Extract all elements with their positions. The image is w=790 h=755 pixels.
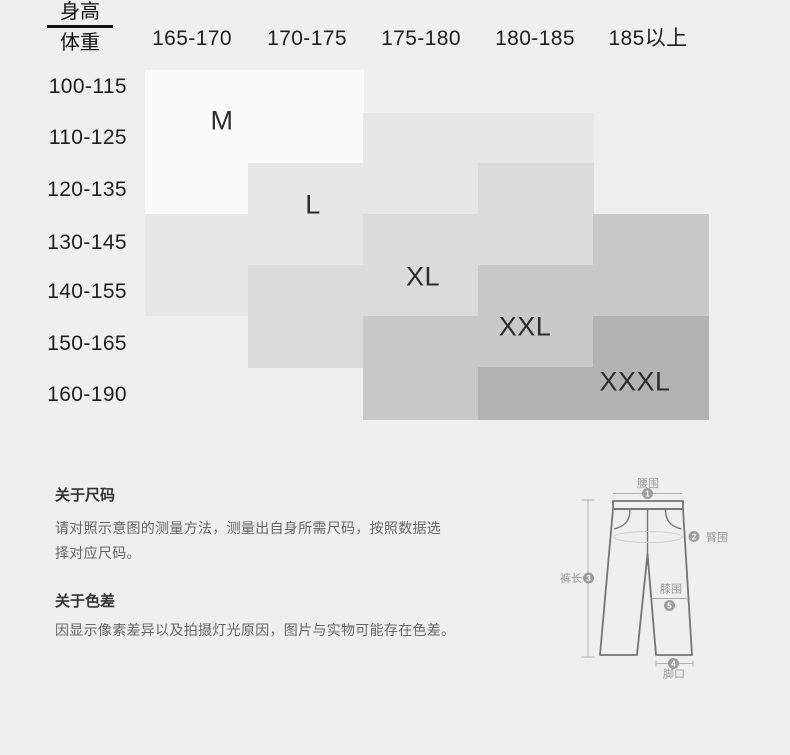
size-region-xxxl-part-0 xyxy=(478,367,594,420)
size-region-xxl-part-0 xyxy=(363,316,479,420)
size-label-xxl: XXL xyxy=(499,312,552,343)
size-region-xxl-part-2 xyxy=(593,214,709,317)
size-label-xl: XL xyxy=(406,262,440,293)
col-header-height-4: 185以上 xyxy=(608,28,687,50)
about-color-body: 因显示像素差异以及拍摄灯光原因，图片与实物可能存在色差。 xyxy=(55,618,455,643)
length-label: 裤长 xyxy=(560,571,582,585)
size-label-l: L xyxy=(305,190,321,221)
about-size-line-2: 择对应尺码。 xyxy=(55,541,441,566)
hem-label: 脚口 xyxy=(663,667,685,681)
row-label-weight-6: 160-190 xyxy=(0,384,127,406)
about-size-heading: 关于尺码 xyxy=(55,487,115,505)
right-pocket-curve xyxy=(666,509,682,529)
hip-number: 2 xyxy=(692,532,697,541)
col-header-height-2: 175-180 xyxy=(381,28,461,50)
table-corner-header: 身高 体重 xyxy=(47,1,113,56)
about-size-body: 请对照示意图的测量方法，测量出自身所需尺码，按照数据选 择对应尺码。 xyxy=(55,516,441,566)
hip-label: 臀围 xyxy=(706,531,728,544)
size-region-m-part-0 xyxy=(145,70,249,214)
size-region-l-part-2 xyxy=(363,113,479,215)
size-region-m-part-1 xyxy=(248,70,364,163)
waist-number: 1 xyxy=(645,489,650,498)
size-chart-page: 身高 体重 165-170170-175175-180180-185185以上 … xyxy=(0,0,790,755)
corner-weight-label: 体重 xyxy=(47,30,113,56)
length-number: 3 xyxy=(586,574,591,583)
left-pocket-curve xyxy=(614,509,630,529)
size-region-xl-part-2 xyxy=(478,163,594,266)
knee-label: 膝围 xyxy=(660,583,682,596)
row-label-weight-4: 140-155 xyxy=(0,281,127,303)
pants-outline xyxy=(600,509,692,655)
pants-measurement-diagram: 腰围 1 2 臀围 裤长 3 膝围 5 4 脚口 xyxy=(555,465,735,690)
col-header-height-1: 170-175 xyxy=(267,28,347,50)
about-size-line-1: 请对照示意图的测量方法，测量出自身所需尺码，按照数据选 xyxy=(55,516,441,541)
size-label-m: M xyxy=(211,106,234,137)
col-header-height-3: 180-185 xyxy=(495,28,575,50)
pants-waistband xyxy=(613,501,683,509)
size-region-l-part-0 xyxy=(145,214,249,317)
row-label-weight-0: 100-115 xyxy=(0,76,127,98)
knee-number: 5 xyxy=(667,601,672,610)
row-label-weight-2: 120-135 xyxy=(0,179,127,201)
corner-divider-line xyxy=(47,25,113,28)
col-header-height-0: 165-170 xyxy=(152,28,232,50)
size-label-xxxl: XXXL xyxy=(599,367,670,398)
hem-number: 4 xyxy=(671,659,676,668)
row-label-weight-5: 150-165 xyxy=(0,333,127,355)
about-color-heading: 关于色差 xyxy=(55,593,115,611)
size-region-xl-part-0 xyxy=(248,265,364,368)
row-label-weight-1: 110-125 xyxy=(0,127,127,149)
row-label-weight-3: 130-145 xyxy=(0,232,127,254)
size-region-l-part-3 xyxy=(478,113,594,164)
corner-height-label: 身高 xyxy=(47,1,113,24)
